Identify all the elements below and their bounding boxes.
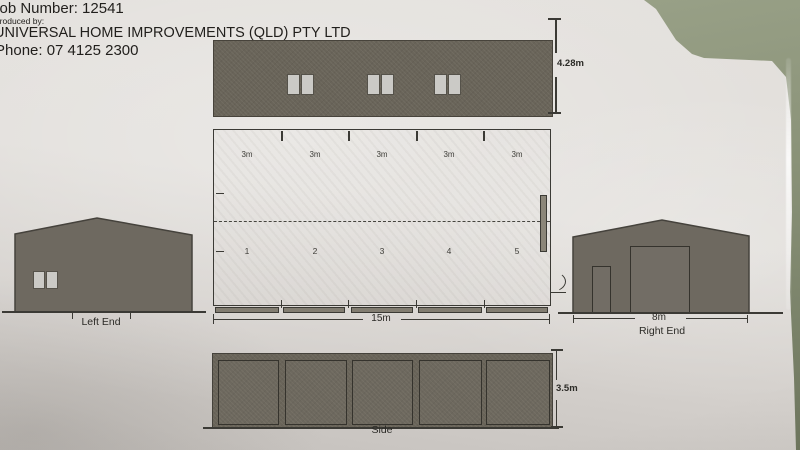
bay-number-label: 4 xyxy=(434,247,464,256)
window-pane xyxy=(287,74,300,95)
dim-line xyxy=(213,319,363,320)
side-height-dim-label: 3.5m xyxy=(556,384,578,394)
personnel-door-leaf xyxy=(551,292,566,293)
left-end-label: Left End xyxy=(60,317,142,329)
door-divider-tick xyxy=(348,300,349,308)
bay-number-label: 2 xyxy=(300,247,330,256)
side-label: Side xyxy=(362,425,402,437)
right-end-width-dim-label: 8m xyxy=(645,312,673,323)
left-end-window-pane xyxy=(33,271,45,289)
table-surface: Job Number: 12541 Produced by: UNIVERSAL… xyxy=(0,0,800,450)
left-end-gable xyxy=(14,216,193,313)
right-wall-door-plan xyxy=(540,195,547,252)
floor-width-dim-label: 15m xyxy=(363,313,399,324)
bay-number-label: 5 xyxy=(502,247,532,256)
dim-line xyxy=(573,318,635,319)
dim-line xyxy=(555,19,557,53)
dim-tick xyxy=(551,426,563,428)
bay-divider-tick xyxy=(348,131,350,141)
left-end-window-pane xyxy=(46,271,58,289)
left-end-ground-line xyxy=(2,311,206,313)
bay-dim-label: 3m xyxy=(232,151,262,160)
dim-line xyxy=(555,77,557,112)
wall-tick xyxy=(216,251,224,252)
roller-door-plan xyxy=(215,307,279,313)
bay-divider-tick xyxy=(416,131,418,141)
plan-centerline xyxy=(214,221,550,222)
bay-dim-label: 3m xyxy=(367,151,397,160)
bay-dim-label: 3m xyxy=(434,151,464,160)
side-roller-door xyxy=(486,360,550,425)
side-roller-door xyxy=(285,360,347,425)
bay-number-label: 3 xyxy=(367,247,397,256)
paper-edge-highlight xyxy=(786,58,791,310)
side-roller-door xyxy=(352,360,413,425)
front-height-dim-label: 4.28m xyxy=(557,59,584,69)
dim-line xyxy=(401,319,550,320)
side-roller-door xyxy=(218,360,279,425)
window-pane xyxy=(301,74,314,95)
dim-tick xyxy=(548,112,561,114)
window-pane xyxy=(448,74,461,95)
bay-dim-label: 3m xyxy=(300,151,330,160)
roller-door-plan xyxy=(486,307,548,313)
right-end-personnel-door xyxy=(592,266,611,313)
bay-dim-label: 3m xyxy=(502,151,532,160)
right-end-label: Right End xyxy=(621,326,703,338)
bay-divider-tick xyxy=(281,131,283,141)
bay-divider-tick xyxy=(483,131,485,141)
wall-tick xyxy=(216,193,224,194)
dim-line xyxy=(556,400,557,427)
phone-text: Phone: 07 4125 2300 xyxy=(0,43,138,60)
window-pane xyxy=(434,74,447,95)
roller-door-plan xyxy=(283,307,345,313)
dim-line xyxy=(686,318,748,319)
window-pane xyxy=(367,74,380,95)
door-divider-tick xyxy=(416,300,417,308)
window-pane xyxy=(381,74,394,95)
dim-line xyxy=(556,350,557,380)
right-end-roller-door xyxy=(630,246,690,313)
door-divider-tick xyxy=(484,300,485,308)
side-roller-door xyxy=(419,360,482,425)
door-divider-tick xyxy=(281,300,282,308)
roller-door-plan xyxy=(418,307,482,313)
bay-number-label: 1 xyxy=(232,247,262,256)
